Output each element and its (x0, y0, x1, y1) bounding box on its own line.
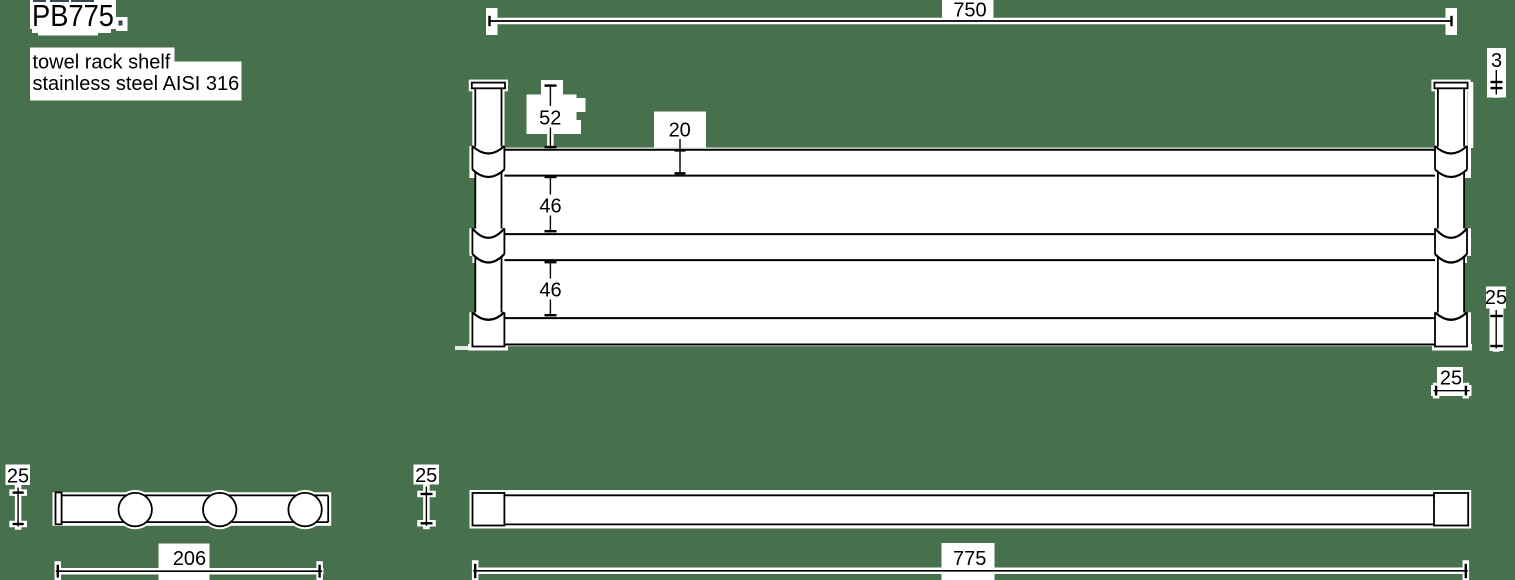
svg-text:3: 3 (1491, 50, 1502, 72)
svg-text:46: 46 (539, 195, 561, 217)
svg-text:25: 25 (7, 466, 29, 488)
svg-text:25: 25 (1440, 367, 1462, 389)
svg-text:20: 20 (669, 120, 691, 142)
svg-text:46: 46 (539, 279, 561, 301)
svg-text:775: 775 (953, 548, 986, 570)
svg-text:towel rack shelf: towel rack shelf (33, 52, 171, 74)
svg-text:206: 206 (173, 548, 206, 570)
svg-text:25: 25 (1485, 287, 1507, 309)
svg-text:stainless steel AISI 316: stainless steel AISI 316 (33, 73, 240, 95)
svg-text:PB775: PB775 (32, 0, 114, 33)
svg-text:25: 25 (415, 465, 437, 487)
svg-text:750: 750 (953, 0, 986, 21)
svg-text:52: 52 (539, 107, 561, 129)
